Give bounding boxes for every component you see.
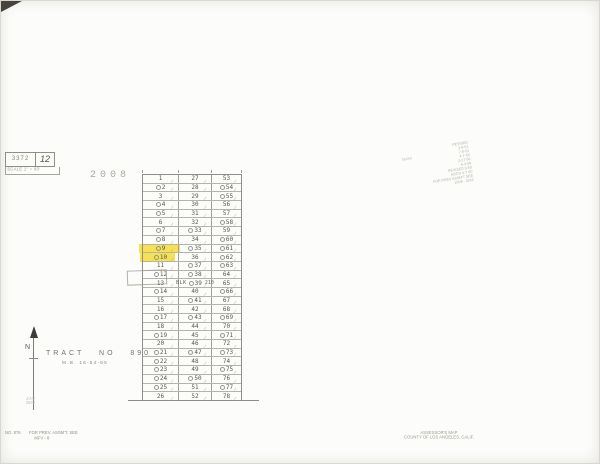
- grid-row: 53157: [143, 210, 241, 219]
- lot-cell-10: 10: [143, 253, 179, 261]
- parcel-circle-icon: [220, 367, 225, 372]
- lot-number: 5: [162, 210, 166, 217]
- lot-cell-77: 77: [212, 384, 241, 392]
- grid-row: 32955: [143, 192, 241, 201]
- lot-cell-3: 3: [143, 192, 179, 200]
- revision-stamp-side-label: 36550: [402, 157, 413, 162]
- lot-cell-22: 22: [143, 357, 179, 365]
- lot-number: 14: [160, 288, 167, 295]
- lot-number: 44: [191, 323, 198, 330]
- lot-cell-78: 78: [212, 392, 241, 400]
- lot-cell-15: 15: [143, 297, 179, 305]
- grid-row: 255177: [143, 384, 241, 393]
- lot-number: 41: [194, 297, 201, 304]
- lot-cell-32: 32: [179, 218, 212, 226]
- grid-row: 63258: [143, 218, 241, 227]
- lot-cell-66: 66: [212, 288, 241, 296]
- lot-cell-41: 41: [179, 297, 212, 305]
- lot-number: 9: [162, 245, 166, 252]
- lot-number: 52: [191, 393, 198, 400]
- revision-stamp-lines: REVISED2-8-517-8-544-7-552-27-566-3-58RE…: [411, 141, 474, 191]
- lot-cell-31: 31: [179, 210, 212, 218]
- lot-number: 74: [223, 358, 230, 365]
- prev-map-number: NO. 876: [5, 431, 21, 435]
- lot-number: 59: [223, 227, 230, 234]
- lot-number: 33: [194, 227, 201, 234]
- lot-number: 18: [157, 323, 164, 330]
- parcel-circle-icon: [220, 237, 225, 242]
- parcel-circle-icon: [154, 385, 159, 390]
- lot-cell-46: 46: [179, 340, 212, 348]
- grid-row: 43056: [143, 201, 241, 210]
- lot-number: 21: [160, 349, 167, 356]
- parcel-circle-icon: [156, 185, 161, 190]
- lot-cell-45: 45: [179, 331, 212, 339]
- lot-cell-70: 70: [212, 323, 241, 331]
- lot-number: 1: [159, 175, 163, 182]
- lot-cell-19: 19: [143, 331, 179, 339]
- lot-number: 4: [162, 201, 166, 208]
- lot-cell-61: 61: [212, 245, 241, 253]
- tick-mark: [142, 170, 143, 173]
- lot-number: 60: [226, 236, 233, 243]
- parcel-circle-icon: [188, 263, 193, 268]
- parcel-circle-icon: [154, 359, 159, 364]
- lot-number: 10: [160, 254, 167, 261]
- tick-mark: [241, 170, 242, 173]
- lot-grid: 1275322854329554305653157632587335983460…: [142, 174, 242, 401]
- lot-number: 31: [191, 210, 198, 217]
- lot-cell-34: 34: [179, 236, 212, 244]
- grid-row: 194571: [143, 331, 241, 340]
- lot-cell-36: 36: [179, 253, 212, 261]
- lot-number: 38: [194, 271, 201, 278]
- parcel-circle-icon: [156, 228, 161, 233]
- lot-cell-58: 58: [212, 218, 241, 226]
- parcel-circle-icon: [220, 315, 225, 320]
- map-reference-box: 3372 12 SCALE 1" = 80': [5, 152, 55, 175]
- lot-number: 17: [160, 314, 167, 321]
- footer-left-note: NO. 876 FOR PREV. ASSM'T. SEE MFV - 8: [5, 431, 96, 441]
- grid-row: 164268: [143, 305, 241, 314]
- lot-cell-72: 72: [212, 340, 241, 348]
- lot-number: 46: [191, 340, 198, 347]
- north-arrow-head: [30, 326, 38, 338]
- lot-number: 64: [223, 271, 230, 278]
- lot-number: 67: [223, 297, 230, 304]
- grid-row: 174369: [143, 314, 241, 323]
- lot-number: 62: [226, 254, 233, 261]
- lot-cell-43: 43: [179, 314, 212, 322]
- lot-cell-38: 38: [179, 271, 212, 279]
- lot-number: 75: [226, 366, 233, 373]
- parcel-circle-icon: [156, 202, 161, 207]
- lot-cell-59: 59: [212, 227, 241, 235]
- reference-box-top: 3372 12: [5, 152, 55, 167]
- parcel-circle-icon: [220, 385, 225, 390]
- grid-row: 144066: [143, 288, 241, 297]
- lot-number: 34: [191, 236, 198, 243]
- lot-cell-21: 21: [143, 349, 179, 357]
- lot-cell-8: 8: [143, 236, 179, 244]
- lot-number: 43: [194, 314, 201, 321]
- county-label: COUNTY OF LOS ANGELES, CALIF.: [404, 436, 474, 441]
- lot-number: 73: [226, 349, 233, 356]
- lot-cell-54: 54: [212, 184, 241, 192]
- lot-number: 7: [162, 227, 166, 234]
- grid-row: 73359: [143, 227, 241, 236]
- lot-cell-56: 56: [212, 201, 241, 209]
- lot-cell-26: 26: [143, 392, 179, 400]
- lot-cell-24: 24: [143, 375, 179, 383]
- lot-number: 76: [223, 375, 230, 382]
- lot-number: 49: [191, 366, 198, 373]
- parcel-circle-icon: [220, 333, 225, 338]
- map-book-number: 3372: [6, 153, 35, 166]
- lot-number: 16: [157, 306, 164, 313]
- lot-cell-5: 5: [143, 210, 179, 218]
- revision-stamp: 36550 REVISED2-8-517-8-544-7-552-27-566-…: [400, 141, 477, 215]
- lot-cell-33: 33: [179, 227, 212, 235]
- lot-cell-51: 51: [179, 384, 212, 392]
- parcel-circle-icon: [154, 333, 159, 338]
- lot-number: 6: [159, 219, 163, 226]
- lot-cell-44: 44: [179, 323, 212, 331]
- lot-cell-17: 17: [143, 314, 179, 322]
- lot-cell-28: 28: [179, 184, 212, 192]
- lot-number: 35: [194, 245, 201, 252]
- lot-cell-52: 52: [179, 392, 212, 400]
- parcel-circle-icon: [154, 289, 159, 294]
- lot-number: 57: [223, 210, 230, 217]
- parcel-circle-icon: [220, 289, 225, 294]
- lot-cell-37: 37: [179, 262, 212, 270]
- prev-assessment-ref: MFV - 8: [34, 437, 96, 441]
- grid-row: 12753: [143, 175, 241, 184]
- lot-cell-42: 42: [179, 305, 212, 313]
- scale-strip: SCALE 1" = 80': [5, 167, 60, 175]
- lot-number: 20: [157, 340, 164, 347]
- lot-number: 51: [191, 384, 198, 391]
- lot-cell-76: 76: [212, 375, 241, 383]
- lot-cell-9: 9: [143, 245, 179, 253]
- parcel-circle-icon: [154, 315, 159, 320]
- lot-number: 68: [223, 306, 230, 313]
- north-label: N: [25, 344, 30, 351]
- lot-number: 19: [160, 332, 167, 339]
- lot-number: 77: [226, 384, 233, 391]
- parcel-circle-icon: [188, 298, 193, 303]
- lot-number: 69: [226, 314, 233, 321]
- grid-row: 103662: [143, 253, 241, 262]
- grid-row: 245076: [143, 375, 241, 384]
- lot-number: 23: [160, 366, 167, 373]
- lot-number: 56: [223, 201, 230, 208]
- parcel-circle-icon: [188, 350, 193, 355]
- sheet-number-label: 2008: [90, 170, 130, 181]
- lot-number: 58: [226, 219, 233, 226]
- lot-number: 53: [223, 175, 230, 182]
- grid-row: 184470: [143, 323, 241, 332]
- corner-note: 2008 2542: [26, 397, 35, 405]
- assessor-map-page: 3372 12 SCALE 1" = 80' 2008 127532285432…: [0, 0, 600, 464]
- parcel-circle-icon: [154, 350, 159, 355]
- lot-cell-48: 48: [179, 357, 212, 365]
- lot-cell-69: 69: [212, 314, 241, 322]
- map-page-number: 12: [35, 153, 54, 166]
- corner-note-line2: 2542: [26, 401, 35, 405]
- lot-number: 72: [223, 340, 230, 347]
- lot-cell-57: 57: [212, 210, 241, 218]
- lot-number: 37: [194, 262, 201, 269]
- lot-cell-23: 23: [143, 366, 179, 374]
- lot-cell-62: 62: [212, 253, 241, 261]
- lot-number: 70: [223, 323, 230, 330]
- grid-row: 234975: [143, 366, 241, 375]
- parcel-circle-icon: [188, 228, 193, 233]
- lot-cell-6: 6: [143, 218, 179, 226]
- lot-cell-65: 65: [212, 279, 241, 287]
- lot-number: 29: [191, 193, 198, 200]
- parcel-circle-icon: [154, 255, 159, 260]
- lot-cell-67: 67: [212, 297, 241, 305]
- parcel-circle-icon: [189, 281, 194, 286]
- lot-cell-11: 11: [143, 262, 179, 270]
- lot-cell-53: 53: [212, 175, 241, 183]
- lot-cell-68: 68: [212, 305, 241, 313]
- parcel-circle-icon: [156, 211, 161, 216]
- lot-cell-20: 20: [143, 340, 179, 348]
- lot-number: 22: [160, 358, 167, 365]
- grid-row: 265278: [143, 392, 241, 400]
- scale-label: SCALE 1" = 80': [6, 167, 42, 172]
- lot-number: 48: [191, 358, 198, 365]
- tick-mark: [211, 170, 212, 173]
- lot-number: 42: [191, 306, 198, 313]
- lot-cell-64: 64: [212, 271, 241, 279]
- tract-map-book: M.B. 16-54-55: [62, 361, 108, 366]
- parcel-circle-icon: [156, 246, 161, 251]
- lot-cell-35: 35: [179, 245, 212, 253]
- north-arrow-crosstick: [29, 358, 38, 359]
- lot-cell-25: 25: [143, 384, 179, 392]
- lot-cell-74: 74: [212, 357, 241, 365]
- parcel-circle-icon: [188, 376, 193, 381]
- grid-row: 204672: [143, 340, 241, 349]
- grid-row: 83460: [143, 236, 241, 245]
- lot-number: 15: [157, 297, 164, 304]
- parcel-circle-icon: [220, 194, 225, 199]
- parcel-circle-icon: [188, 315, 193, 320]
- parcel-circle-icon: [220, 185, 225, 190]
- lot-number: 40: [191, 288, 198, 295]
- grid-row: 93561: [143, 245, 241, 254]
- lot-cell-39: BLK39210: [179, 279, 212, 287]
- lot-number: 66: [226, 288, 233, 295]
- lot-cell-16: 16: [143, 305, 179, 313]
- lot-number: 63: [226, 262, 233, 269]
- lot-number: 11: [157, 262, 164, 269]
- lot-number: 8: [162, 236, 166, 243]
- lot-number: 36: [191, 254, 198, 261]
- lot-number: 71: [226, 332, 233, 339]
- parcel-circle-icon: [154, 367, 159, 372]
- parcel-circle-icon: [188, 246, 193, 251]
- grid-row: 154167: [143, 297, 241, 306]
- grid-row: 214773: [143, 349, 241, 358]
- lot-cell-71: 71: [212, 331, 241, 339]
- lot-number: 55: [226, 193, 233, 200]
- grid-row: 22854: [143, 184, 241, 193]
- lot-cell-27: 27: [179, 175, 212, 183]
- grid-row: 224874: [143, 357, 241, 366]
- lot-number: 61: [226, 245, 233, 252]
- lot-number: 54: [226, 184, 233, 191]
- lot-number: 47: [194, 349, 201, 356]
- lot-number: 2: [162, 184, 166, 191]
- lot-number: 3: [159, 193, 163, 200]
- lot-cell-49: 49: [179, 366, 212, 374]
- lot-number: 78: [223, 393, 230, 400]
- lot-number: 50: [194, 375, 201, 382]
- lot-cell-60: 60: [212, 236, 241, 244]
- lot-cell-47: 47: [179, 349, 212, 357]
- lot-cell-7: 7: [143, 227, 179, 235]
- lot-number: 25: [160, 384, 167, 391]
- lot-number: 32: [191, 219, 198, 226]
- lot-cell-1: 1: [143, 175, 179, 183]
- lot-cell-40: 40: [179, 288, 212, 296]
- lot-cell-4: 4: [143, 201, 179, 209]
- stamp-annotation-box: [127, 269, 167, 285]
- tract-title: TRACT NO 890: [46, 350, 151, 357]
- parcel-circle-icon: [220, 350, 225, 355]
- lot-cell-30: 30: [179, 201, 212, 209]
- lot-number: 27: [191, 175, 198, 182]
- lot-cell-29: 29: [179, 192, 212, 200]
- lot-cell-14: 14: [143, 288, 179, 296]
- prev-assessment-note: FOR PREV. ASSM'T. SEE: [29, 431, 78, 435]
- parcel-circle-icon: [154, 376, 159, 381]
- blk-label: BLK: [176, 280, 187, 286]
- lot-cell-50: 50: [179, 375, 212, 383]
- lot-number: 24: [160, 375, 167, 382]
- parcel-circle-icon: [220, 246, 225, 251]
- parcel-circle-icon: [220, 255, 225, 260]
- lot-cell-55: 55: [212, 192, 241, 200]
- tick-mark: [178, 170, 179, 173]
- lot-number: 26: [157, 393, 164, 400]
- lot-cell-2: 2: [143, 184, 179, 192]
- lot-number: 65: [223, 280, 230, 287]
- lot-cell-73: 73: [212, 349, 241, 357]
- lot-cell-75: 75: [212, 366, 241, 374]
- lot-number: 28: [191, 184, 198, 191]
- parcel-circle-icon: [156, 237, 161, 242]
- footer-right-credit: ASSESSOR'S MAP COUNTY OF LOS ANGELES, CA…: [404, 431, 474, 441]
- parcel-circle-icon: [188, 272, 193, 277]
- lot-number: 45: [191, 332, 198, 339]
- lot-cell-18: 18: [143, 323, 179, 331]
- lot-number: 39: [195, 280, 202, 287]
- parcel-circle-icon: [220, 220, 225, 225]
- lot-cell-63: 63: [212, 262, 241, 270]
- lot-number: 30: [191, 201, 198, 208]
- parcel-circle-icon: [220, 263, 225, 268]
- scan-corner-artifact: [1, 1, 22, 12]
